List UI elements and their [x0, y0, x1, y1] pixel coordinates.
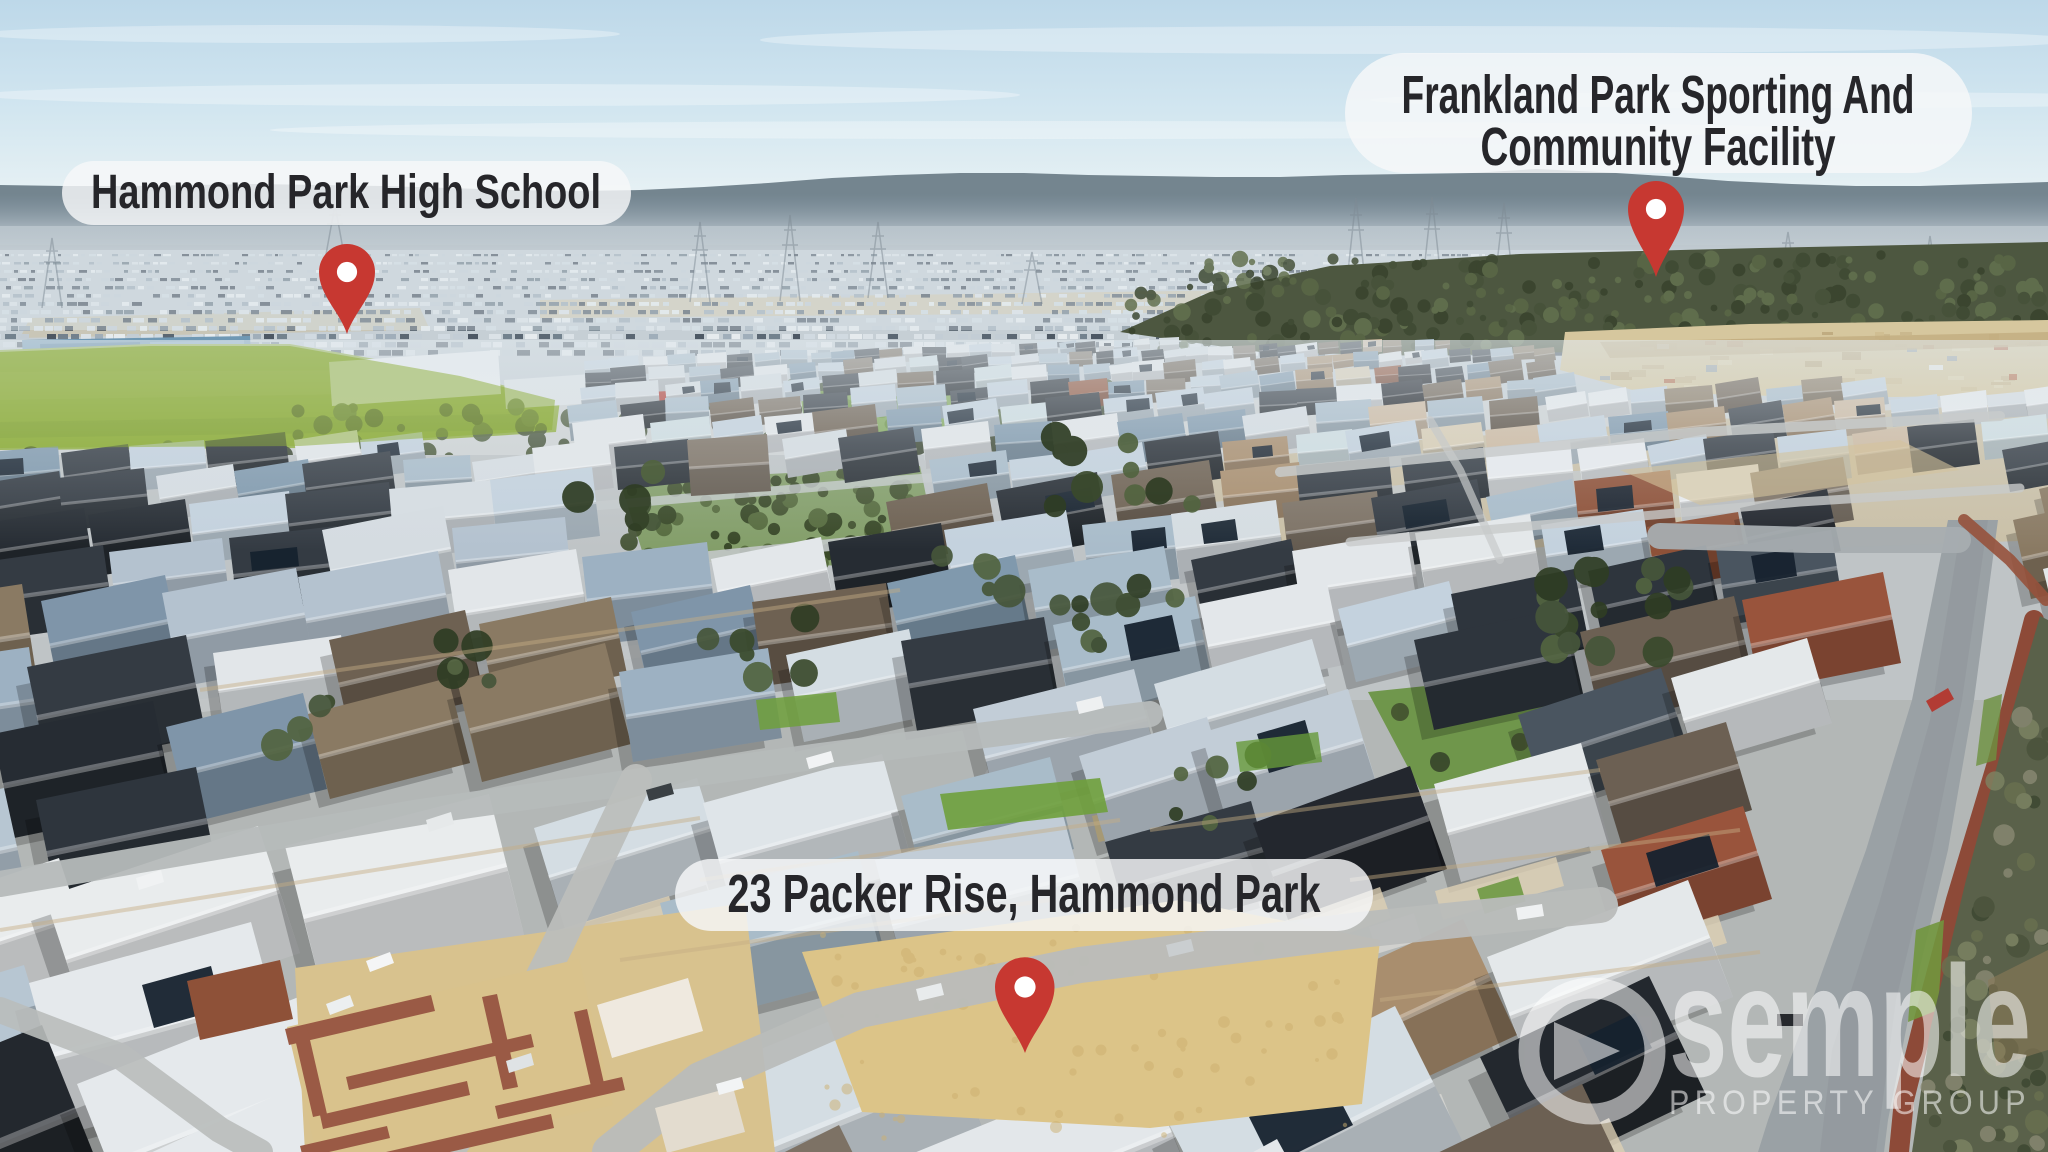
svg-text:PROPERTY GROUP: PROPERTY GROUP: [1669, 1084, 2031, 1122]
svg-text:Frankland Park Sporting And: Frankland Park Sporting And: [1402, 65, 1915, 125]
svg-text:Hammond Park High School: Hammond Park High School: [91, 166, 601, 219]
svg-text:23 Packer Rise, Hammond Park: 23 Packer Rise, Hammond Park: [728, 864, 1322, 924]
svg-text:Community Facility: Community Facility: [1481, 117, 1836, 177]
